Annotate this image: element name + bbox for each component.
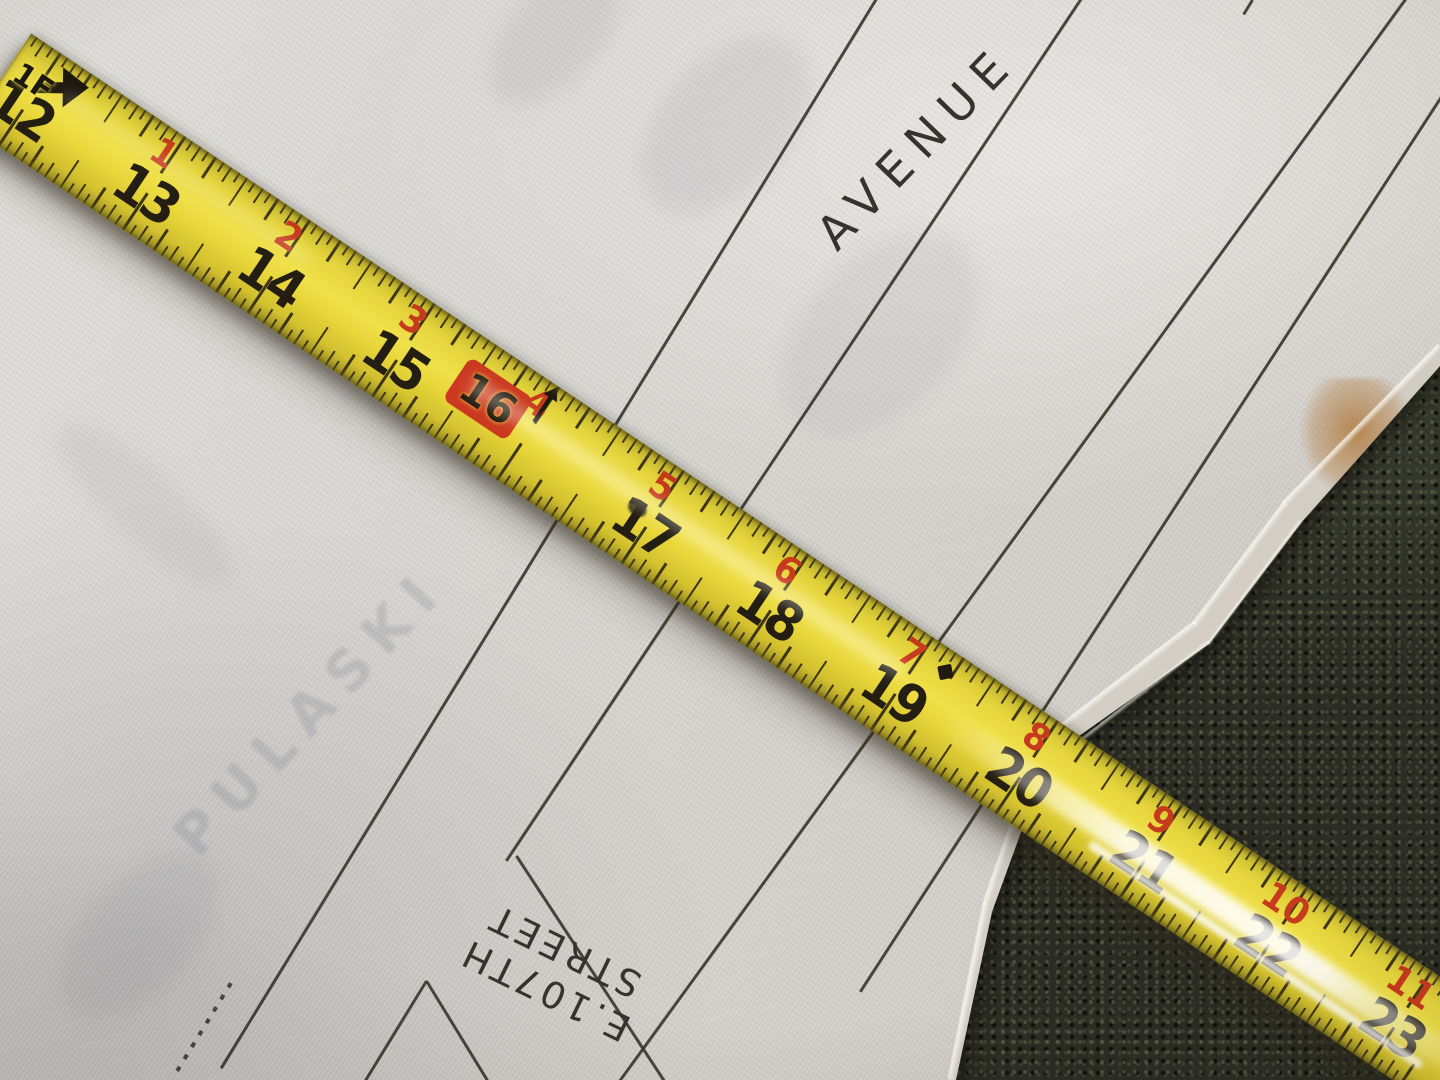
tape-tick xyxy=(223,288,231,298)
tape-tick xyxy=(433,410,454,439)
tape-tick xyxy=(1283,997,1291,1007)
tape-tick xyxy=(722,621,730,631)
tape-tick xyxy=(1105,756,1113,766)
tape-tick xyxy=(346,251,357,266)
tape-tick xyxy=(75,183,86,198)
tape-tick xyxy=(575,402,583,412)
tape-tick xyxy=(466,329,474,339)
tape-tick xyxy=(1306,994,1327,1023)
tape-tick xyxy=(762,527,770,537)
tape-tick xyxy=(248,183,256,193)
tape-tick xyxy=(969,668,980,683)
tape-tick xyxy=(574,517,585,532)
tape-tick xyxy=(1225,845,1246,874)
tape-tick xyxy=(909,747,917,757)
tape-tick xyxy=(1000,689,1011,704)
tape-tick xyxy=(1374,939,1385,954)
tape-tick xyxy=(698,601,709,616)
tape-tick xyxy=(1074,736,1082,746)
tape-tick xyxy=(903,621,911,631)
tape-tick xyxy=(1089,746,1097,756)
tape-tick xyxy=(1370,934,1378,944)
tape-tick xyxy=(293,330,304,345)
tape-tick xyxy=(1214,830,1222,840)
tape-tick xyxy=(667,580,678,595)
tape-tick xyxy=(176,256,184,266)
tape-tick xyxy=(550,507,558,517)
tape-tick xyxy=(778,537,786,547)
tape-tick xyxy=(653,454,661,464)
tape-tick xyxy=(1350,928,1371,957)
tape-tick xyxy=(363,381,371,391)
tape-tick xyxy=(893,736,901,746)
tape-tick xyxy=(253,188,264,203)
tape-tick xyxy=(706,611,714,621)
tape-tick xyxy=(1199,819,1207,829)
tape-tick xyxy=(1343,918,1354,933)
tape-tick xyxy=(751,522,762,537)
tape-tick xyxy=(457,444,465,454)
stud-diamond-icon xyxy=(937,664,953,680)
tape-tick xyxy=(451,318,459,328)
tape-tick xyxy=(1314,1018,1322,1028)
tape-tick xyxy=(435,308,443,318)
tape-tick xyxy=(1049,840,1057,850)
tape-tick xyxy=(1056,827,1077,856)
tape-tick xyxy=(388,277,396,287)
tape-tick xyxy=(83,194,91,204)
tape-tick xyxy=(1100,761,1121,790)
tape-tick xyxy=(190,146,201,161)
tape-tick xyxy=(731,506,739,516)
tape-tick xyxy=(566,517,574,527)
tape-tick xyxy=(1230,840,1238,850)
tape-tick xyxy=(1251,976,1259,986)
tape-tick xyxy=(36,162,44,172)
tape-tick xyxy=(1058,725,1066,735)
tape-tick xyxy=(815,684,823,694)
tape-tick xyxy=(622,433,630,443)
tape-tick xyxy=(613,548,621,558)
tape-tick xyxy=(418,413,429,428)
tape-tick xyxy=(862,715,870,725)
tape-tick xyxy=(581,528,589,538)
tape-tick xyxy=(737,632,745,642)
coffee-stain-small xyxy=(1337,468,1383,518)
tape-tick xyxy=(689,480,700,495)
tape-tick xyxy=(753,642,761,652)
tape-tick xyxy=(996,683,1004,693)
tape-tick xyxy=(186,141,194,151)
tape-tick xyxy=(130,225,138,235)
tape-tick xyxy=(373,266,381,276)
tape-tick xyxy=(924,757,932,767)
tape-tick xyxy=(1386,944,1394,954)
tape-tick xyxy=(128,105,139,120)
tape-tick xyxy=(98,204,106,214)
tape-tick xyxy=(1012,694,1020,704)
tape-tick xyxy=(955,778,963,788)
tape-tick xyxy=(691,601,699,611)
tape-tick xyxy=(1033,830,1041,840)
tape-tick xyxy=(644,569,652,579)
tape-tick xyxy=(564,397,575,412)
tape-tick xyxy=(1298,1007,1306,1017)
tape-tick xyxy=(876,605,887,620)
tape-tick xyxy=(404,287,412,297)
tape-tick xyxy=(825,569,833,579)
tape-tick xyxy=(792,663,803,678)
tape-tick xyxy=(1236,966,1244,976)
tape-tick xyxy=(800,674,808,684)
tape-tick xyxy=(168,246,179,261)
tape-tick xyxy=(938,647,949,662)
tape-tick xyxy=(239,298,247,308)
tape-tick xyxy=(285,329,293,339)
tape-tick xyxy=(1111,882,1119,892)
tape-tick xyxy=(684,475,692,485)
tape-tick xyxy=(279,204,287,214)
tape-tick xyxy=(324,350,335,365)
tape-tick xyxy=(1136,777,1144,787)
tape-tick xyxy=(831,694,839,704)
tape-tick xyxy=(716,496,724,506)
tape-tick xyxy=(301,340,309,350)
tape-tick xyxy=(591,412,599,422)
tape-tick xyxy=(326,235,334,245)
tape-tick xyxy=(1080,861,1088,871)
tape-tick xyxy=(155,120,163,130)
tape-tick xyxy=(1002,809,1010,819)
tape-tick xyxy=(228,177,249,206)
tape-tick xyxy=(1329,1028,1337,1038)
tape-tick xyxy=(1121,767,1129,777)
tape-tick xyxy=(1197,934,1208,949)
tape-tick xyxy=(332,361,340,371)
tape-tick xyxy=(264,193,272,203)
tape-tick xyxy=(139,110,147,120)
tape-tick xyxy=(208,277,216,287)
tape-tick xyxy=(161,246,169,256)
tape-tick xyxy=(606,423,614,433)
tape-tick xyxy=(1392,1070,1400,1080)
tape-tick xyxy=(980,673,988,683)
tape-tick xyxy=(675,590,683,600)
tape-tick xyxy=(310,225,318,235)
tape-tick xyxy=(497,350,505,360)
tape-tick xyxy=(726,511,747,540)
tape-tick xyxy=(52,173,60,183)
tape-tick xyxy=(940,767,948,777)
tape-tick xyxy=(535,496,543,506)
tape-tick xyxy=(192,267,200,277)
tape-tick xyxy=(308,326,329,355)
tape-tick xyxy=(597,538,605,548)
tape-tick xyxy=(221,167,232,182)
tape-tick xyxy=(1323,903,1331,913)
tape-tick xyxy=(948,768,959,783)
tape-tick xyxy=(270,319,278,329)
tape-tick xyxy=(626,438,637,453)
tape-tick xyxy=(1181,911,1202,940)
tape-tick xyxy=(1267,986,1275,996)
tape-tick xyxy=(1183,809,1191,819)
tape-tick xyxy=(342,245,350,255)
tape-tick xyxy=(1174,924,1182,934)
tape-tick xyxy=(114,215,122,225)
tape-tick xyxy=(542,496,553,511)
tape-tick xyxy=(394,402,402,412)
tape-tick xyxy=(513,360,521,370)
tape-tick xyxy=(471,334,482,349)
tape-tick xyxy=(1158,913,1166,923)
tape-tick xyxy=(846,705,854,715)
tape-tick xyxy=(315,230,326,245)
tape-tick xyxy=(595,417,606,432)
tape-tick xyxy=(1290,997,1301,1012)
tape-tick xyxy=(1018,820,1026,830)
tape-tick xyxy=(1096,872,1104,882)
tape-tick xyxy=(348,371,356,381)
tape-tick xyxy=(845,584,856,599)
tape-tick xyxy=(916,747,927,762)
tape-tick xyxy=(1250,856,1261,871)
tape-tick xyxy=(201,152,209,162)
tape-tick xyxy=(628,559,636,569)
tape-tick xyxy=(747,517,755,527)
tape-tick xyxy=(965,663,973,673)
tape-tick xyxy=(558,493,579,522)
tape-tick xyxy=(1321,1018,1332,1033)
tape-tick xyxy=(44,163,55,178)
tape-tick xyxy=(871,600,879,610)
tape-tick xyxy=(488,465,496,475)
tape-tick xyxy=(887,610,895,620)
tape-tick xyxy=(1127,893,1135,903)
tape-tick xyxy=(1125,772,1136,787)
tape-tick xyxy=(638,444,646,454)
tape-tick xyxy=(504,475,512,485)
tape-tick xyxy=(410,413,418,423)
tape-tick xyxy=(823,684,834,699)
tape-tick xyxy=(768,653,776,663)
tape-tick xyxy=(932,744,953,773)
tape-tick xyxy=(254,308,262,318)
tape-tick xyxy=(145,235,153,245)
tape-tick xyxy=(682,577,703,606)
tape-tick xyxy=(5,142,13,152)
tape-tick xyxy=(352,261,373,290)
tape-tick xyxy=(1376,1059,1384,1069)
tape-tick xyxy=(720,501,731,516)
tape-tick xyxy=(856,590,864,600)
tape-tick xyxy=(878,726,886,736)
tape-tick xyxy=(971,788,979,798)
tape-tick xyxy=(1072,851,1083,866)
tape-tick xyxy=(784,663,792,673)
tape-tick xyxy=(813,563,824,578)
tape-tick xyxy=(426,423,434,433)
tape-tick xyxy=(482,339,490,349)
tape-tick xyxy=(1245,850,1253,860)
tape-tick xyxy=(67,183,75,193)
tape-tick xyxy=(449,434,460,449)
tape-tick xyxy=(1027,704,1035,714)
tape-tick xyxy=(1345,1039,1353,1049)
tape-tick xyxy=(184,243,205,272)
tape-tick xyxy=(659,580,667,590)
tape-tick xyxy=(1041,830,1052,845)
tape-tick xyxy=(59,160,80,189)
stud-box-16: 16 xyxy=(442,357,534,442)
tape-tick xyxy=(851,595,872,624)
tape-tick xyxy=(1361,1049,1369,1059)
tape-tick xyxy=(1220,955,1228,965)
tape-tick xyxy=(1166,914,1177,929)
tape-tick xyxy=(987,799,995,809)
tape-tick xyxy=(441,434,449,444)
tape-tick xyxy=(519,486,527,496)
tape-tick xyxy=(1187,814,1198,829)
tape-tick xyxy=(529,371,537,381)
tape-tick xyxy=(502,355,513,370)
tape-tick xyxy=(357,256,365,266)
tape-tick xyxy=(1205,945,1213,955)
tape-tick xyxy=(1152,788,1160,798)
tape-tick xyxy=(377,271,388,286)
tape-tick xyxy=(1339,913,1347,923)
tape-tick xyxy=(480,455,491,470)
tape-tick xyxy=(439,313,450,328)
tape-tick xyxy=(934,642,942,652)
tape-tick xyxy=(379,392,387,402)
tape-tick xyxy=(1189,934,1197,944)
tape-tick xyxy=(1354,923,1362,933)
tape-tick xyxy=(700,485,708,495)
tape-tick xyxy=(949,652,957,662)
tape-tick xyxy=(602,428,623,457)
tape-tick xyxy=(976,678,997,707)
tape-tick xyxy=(807,660,828,689)
tape-tick xyxy=(1094,751,1105,766)
tape-tick xyxy=(217,162,225,172)
tape-tick xyxy=(200,267,211,282)
tape-tick xyxy=(809,558,817,568)
tape-tick xyxy=(1063,730,1074,745)
photo-canvas: AVENUE E.107TH STREET PULASKI 1213141517… xyxy=(0,0,1440,1080)
tape-tick xyxy=(1142,903,1150,913)
tape-tick xyxy=(472,454,480,464)
tape-tick xyxy=(511,476,522,491)
tape-tick xyxy=(1064,851,1072,861)
tape-tick xyxy=(317,350,325,360)
tape-tick xyxy=(1261,861,1269,871)
tape-tick xyxy=(233,172,241,182)
tape-tick xyxy=(1219,835,1230,850)
tape-tick xyxy=(21,152,29,162)
tape-tick xyxy=(840,579,848,589)
